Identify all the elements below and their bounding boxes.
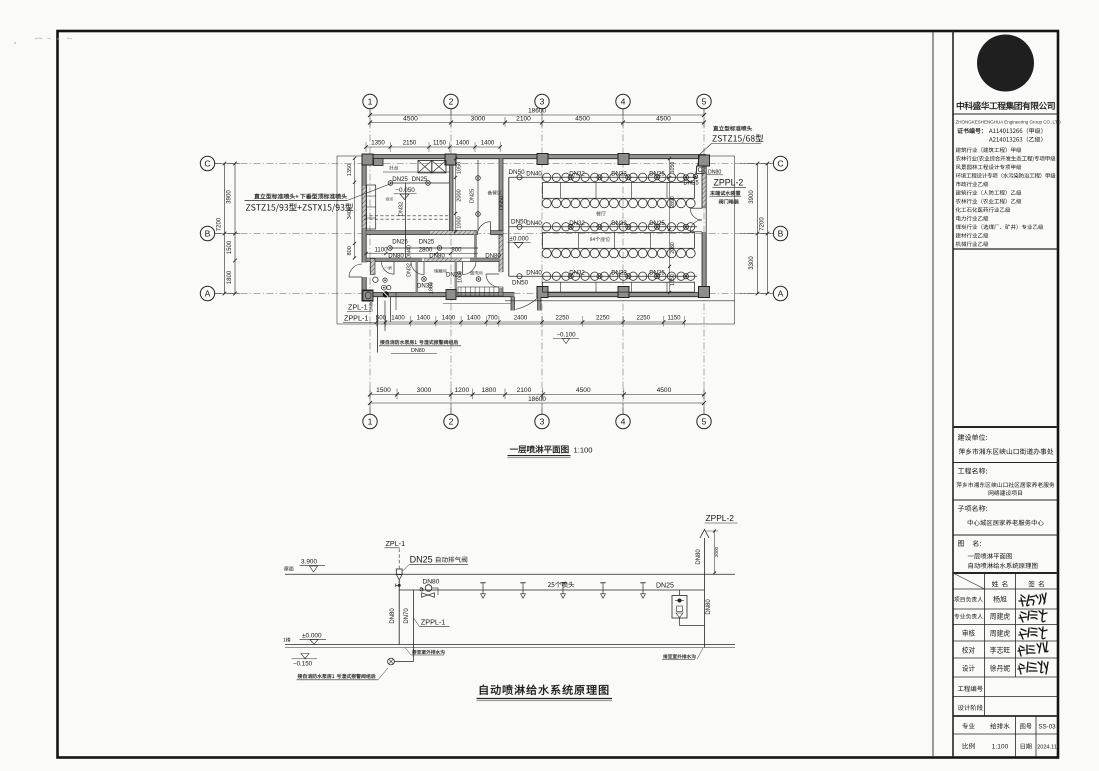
svg-text:DN32: DN32 [399, 202, 405, 216]
svg-text:1: 1 [368, 417, 373, 427]
svg-text:7200: 7200 [760, 217, 766, 231]
svg-text:2024.11: 2024.11 [1037, 745, 1057, 751]
svg-text:1100: 1100 [374, 247, 388, 254]
svg-text:18600: 18600 [528, 108, 546, 115]
svg-text:DN32: DN32 [611, 269, 627, 276]
svg-text:3: 3 [540, 97, 545, 107]
svg-text:DN25: DN25 [649, 269, 665, 276]
svg-text:18600: 18600 [528, 396, 546, 403]
svg-text:A: A [778, 289, 784, 299]
svg-text:2250: 2250 [556, 315, 570, 322]
svg-text:4500: 4500 [403, 115, 418, 122]
svg-text:2: 2 [449, 97, 454, 107]
svg-text:审核: 审核 [962, 629, 976, 638]
svg-text:DN25: DN25 [419, 239, 435, 246]
svg-text:±0.000: ±0.000 [509, 236, 529, 243]
svg-text:700: 700 [488, 315, 499, 322]
svg-text:2100: 2100 [516, 115, 531, 122]
svg-text:DN25: DN25 [683, 181, 699, 187]
svg-text:DN32: DN32 [569, 220, 585, 227]
svg-text:−0.150: −0.150 [293, 661, 313, 668]
svg-text:DN25: DN25 [649, 220, 665, 227]
svg-text:ZHONGKESHENGHUA Engineering Gr: ZHONGKESHENGHUA Engineering Group CO.,LT… [956, 120, 1062, 125]
svg-text:徐丹妮: 徐丹妮 [990, 664, 1011, 673]
svg-text:2000: 2000 [456, 189, 462, 201]
svg-text:2: 2 [449, 417, 454, 427]
svg-text:DN70: DN70 [404, 608, 410, 624]
svg-text:DN50: DN50 [499, 196, 505, 210]
svg-text:1350: 1350 [347, 164, 353, 176]
svg-text:2080: 2080 [670, 242, 676, 254]
svg-text:1500: 1500 [227, 240, 233, 254]
svg-text:C: C [777, 159, 783, 169]
svg-text:5: 5 [702, 417, 707, 427]
svg-text:1400: 1400 [481, 140, 495, 147]
svg-text:C: C [204, 159, 210, 169]
svg-text:ZPPL-1: ZPPL-1 [421, 618, 445, 627]
svg-text:2150: 2150 [403, 140, 417, 147]
svg-text:1800: 1800 [429, 282, 435, 294]
svg-text:DN50: DN50 [512, 280, 529, 287]
svg-text:DN32: DN32 [569, 269, 585, 276]
svg-text:1400: 1400 [417, 315, 431, 322]
svg-text:1:100: 1:100 [992, 744, 1009, 751]
svg-text:1150: 1150 [433, 140, 447, 147]
svg-text:1:100: 1:100 [574, 446, 593, 455]
svg-text:7200: 7200 [217, 217, 223, 231]
svg-text:4500: 4500 [656, 115, 671, 122]
svg-text:DN25: DN25 [392, 239, 408, 246]
svg-text:2250: 2250 [596, 315, 610, 322]
svg-text:SS-03: SS-03 [1038, 724, 1056, 731]
svg-text:1000: 1000 [456, 216, 462, 228]
svg-text:1800: 1800 [481, 387, 496, 394]
svg-text:4500: 4500 [657, 387, 672, 394]
svg-text:DN32: DN32 [569, 171, 585, 178]
svg-text:3300: 3300 [749, 256, 755, 270]
svg-text:DN40: DN40 [526, 269, 542, 276]
svg-text:1650: 1650 [670, 274, 676, 286]
svg-text:DN32: DN32 [611, 220, 627, 227]
svg-text:1: 1 [368, 97, 373, 107]
svg-text:3900: 3900 [227, 190, 233, 204]
svg-text:1400: 1400 [391, 315, 405, 322]
svg-text:DN25: DN25 [649, 171, 665, 178]
svg-text:3900: 3900 [749, 190, 755, 204]
svg-text:项目负责人: 项目负责人 [954, 596, 983, 604]
svg-text:1800: 1800 [227, 270, 233, 284]
svg-text:专业负责人: 专业负责人 [954, 613, 983, 621]
svg-text:DN40: DN40 [526, 220, 542, 227]
svg-text:DN25: DN25 [412, 176, 428, 183]
svg-text:3: 3 [540, 417, 545, 427]
svg-text:±0.000: ±0.000 [302, 633, 322, 640]
svg-text:设计: 设计 [962, 664, 976, 673]
svg-text:1400: 1400 [442, 315, 456, 322]
svg-text:DN40: DN40 [526, 171, 542, 178]
svg-text:B: B [205, 229, 211, 239]
svg-text:2000: 2000 [714, 546, 719, 557]
svg-text:周建虎: 周建虎 [990, 612, 1011, 621]
svg-text:2890: 2890 [670, 196, 676, 208]
svg-text:DN80: DN80 [390, 608, 396, 624]
svg-text:DN80: DN80 [706, 599, 712, 615]
svg-text:ZPPL-2: ZPPL-2 [714, 178, 744, 188]
svg-text:DN80: DN80 [423, 579, 440, 586]
svg-text:ZPL-1: ZPL-1 [386, 539, 406, 548]
svg-text:DN25: DN25 [392, 176, 408, 183]
svg-text:3.900: 3.900 [301, 559, 317, 566]
svg-text:DN25: DN25 [656, 583, 674, 590]
svg-text:3000: 3000 [471, 115, 486, 122]
svg-text:2250: 2250 [637, 315, 651, 322]
svg-text:e: e [14, 40, 17, 45]
svg-text:DN80: DN80 [388, 252, 404, 259]
svg-text:4500: 4500 [576, 387, 591, 394]
svg-text:4500: 4500 [575, 115, 590, 122]
svg-text:DN32: DN32 [611, 171, 627, 178]
svg-text:B: B [778, 229, 784, 239]
svg-text:4: 4 [621, 97, 626, 107]
svg-text:DN80: DN80 [369, 300, 374, 312]
svg-text:DN25: DN25 [470, 189, 476, 203]
svg-text:DN80: DN80 [696, 549, 702, 565]
svg-text:800: 800 [347, 246, 353, 255]
svg-text:校对: 校对 [962, 646, 976, 655]
svg-text:DN50: DN50 [509, 169, 526, 176]
svg-text:2100: 2100 [517, 387, 532, 394]
svg-text:2400: 2400 [514, 315, 528, 322]
svg-text:3000: 3000 [417, 387, 432, 394]
svg-text:DN40: DN40 [406, 245, 412, 259]
svg-text:DN80: DN80 [411, 348, 425, 354]
svg-text:1050: 1050 [670, 162, 676, 174]
svg-text:1150: 1150 [667, 315, 681, 322]
svg-text:A: A [205, 289, 211, 299]
svg-text:−0.100: −0.100 [556, 332, 576, 339]
svg-text:杨旭: 杨旭 [993, 595, 1007, 604]
svg-text:ZPPL-2: ZPPL-2 [706, 513, 735, 523]
svg-text:李志旺: 李志旺 [990, 646, 1011, 655]
svg-text:周建虎: 周建虎 [990, 629, 1011, 638]
svg-text:1400: 1400 [467, 315, 481, 322]
svg-text:DN80: DN80 [429, 252, 445, 259]
svg-text:1050: 1050 [456, 162, 462, 174]
svg-text:800: 800 [451, 247, 462, 254]
svg-text:DN80: DN80 [485, 252, 501, 259]
svg-text:ZPL-1: ZPL-1 [348, 303, 368, 312]
svg-text:5: 5 [702, 97, 707, 107]
svg-text:1200: 1200 [454, 387, 469, 394]
svg-text:1350: 1350 [371, 140, 385, 147]
svg-text:ZPPL-1: ZPPL-1 [344, 314, 368, 323]
svg-text:DN25: DN25 [410, 555, 433, 565]
svg-text:4: 4 [621, 417, 626, 427]
svg-text:1500: 1500 [376, 387, 391, 394]
svg-text:1400: 1400 [456, 140, 470, 147]
